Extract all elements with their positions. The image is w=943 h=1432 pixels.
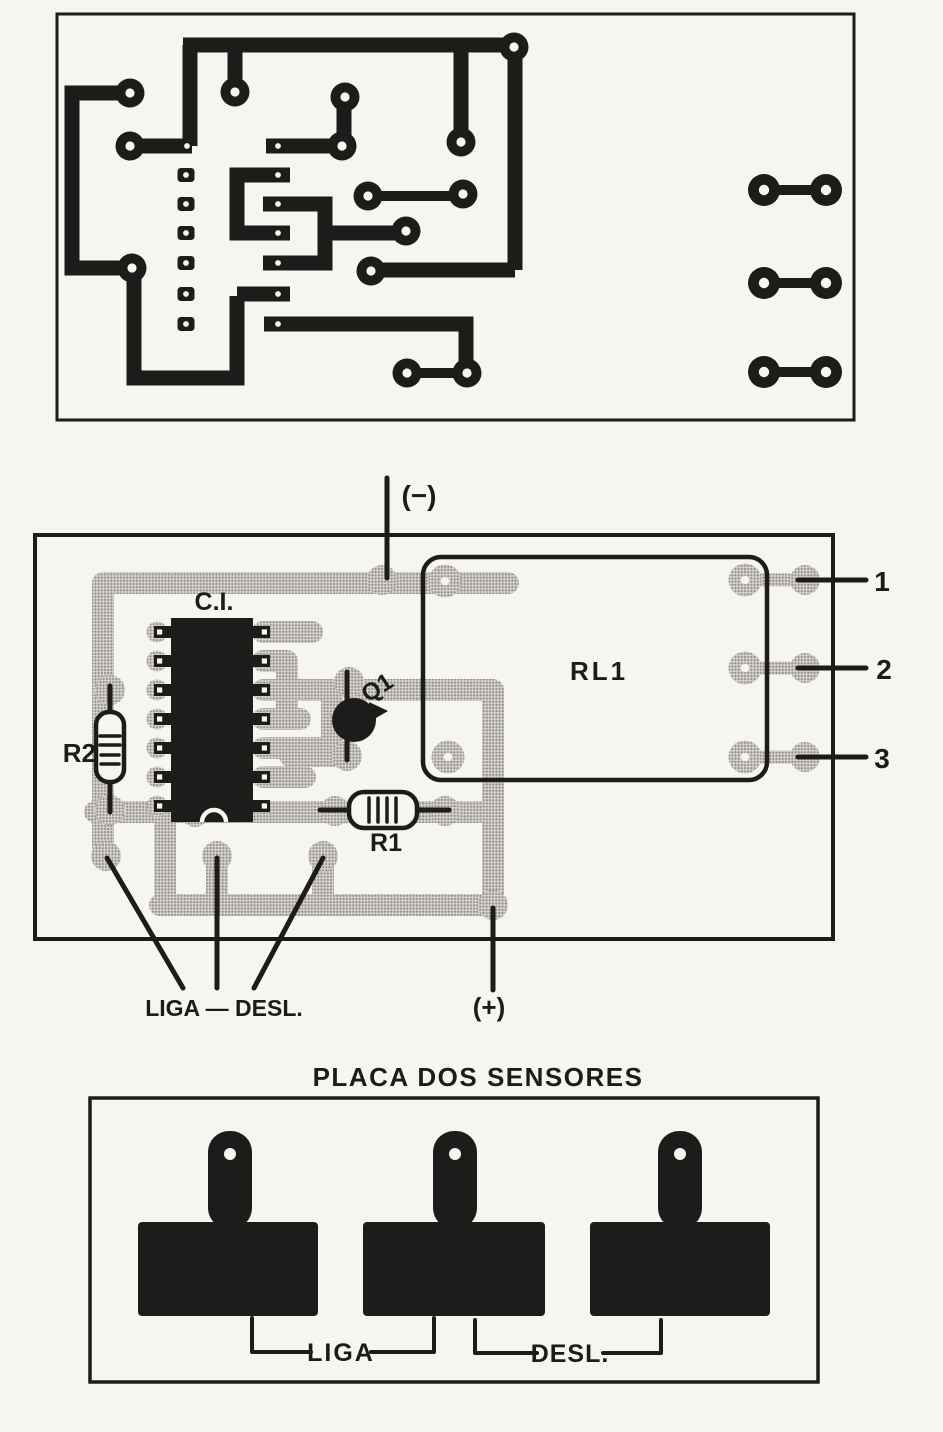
sensor-stem — [208, 1131, 252, 1229]
label-relay: RL1 — [570, 656, 628, 686]
label-pin2: 2 — [876, 654, 892, 685]
relay-pad — [729, 564, 762, 597]
label-pin1: 1 — [874, 566, 890, 597]
sensor-plate — [363, 1222, 545, 1316]
pad — [810, 174, 842, 206]
pad — [449, 180, 478, 209]
sensor-pad-1 — [138, 1131, 318, 1316]
pad — [810, 356, 842, 388]
ic-pin — [253, 713, 270, 725]
ic-pad — [178, 317, 195, 331]
relay-pad — [432, 741, 465, 774]
r2-body — [96, 712, 124, 782]
label-switch: LIGA — DESL. — [145, 995, 303, 1021]
ic-body — [171, 618, 253, 822]
relay-pad — [729, 652, 762, 685]
ic-pin — [154, 800, 171, 812]
pad — [354, 182, 383, 211]
sensor-board-title: PLACA DOS SENSORES — [313, 1062, 644, 1092]
relay-pad — [429, 565, 462, 598]
label-negative: (−) — [402, 480, 437, 511]
pad — [116, 132, 145, 161]
label-ic: C.I. — [195, 588, 234, 616]
copper-solder-pads — [116, 33, 843, 389]
pad — [221, 78, 250, 107]
pcb-figure: (−) C.I. R2 Q1 R1 RL1 1 2 3 LIGA — DESL.… — [0, 0, 943, 1432]
pad — [748, 174, 780, 206]
component-board: (−) C.I. R2 Q1 R1 RL1 1 2 3 LIGA — DESL.… — [35, 478, 892, 1022]
ic-pad — [178, 256, 195, 270]
ic-pin — [253, 771, 270, 783]
ic-pin — [154, 684, 171, 696]
ic-pin — [253, 800, 270, 812]
pad — [393, 359, 422, 388]
negative-pad — [367, 565, 397, 595]
ic-pin — [154, 742, 171, 754]
sensor-pad-2 — [363, 1131, 545, 1316]
pad — [447, 128, 476, 157]
sensor-hole — [674, 1148, 686, 1160]
ic-pad — [178, 226, 195, 240]
ic-pin — [253, 742, 270, 754]
sensor-hole — [224, 1148, 236, 1160]
ic-pin — [253, 626, 270, 638]
label-desl: DESL. — [531, 1340, 610, 1368]
ic-pin — [154, 655, 171, 667]
ic-pad — [178, 197, 195, 211]
copper-board — [57, 14, 854, 420]
ic-pin — [154, 626, 171, 638]
pad — [500, 33, 529, 62]
scanned-figure-page: (−) C.I. R2 Q1 R1 RL1 1 2 3 LIGA — DESL.… — [0, 0, 943, 1432]
ic-pad — [178, 287, 195, 301]
relay-pad — [729, 741, 762, 774]
ic-chip — [154, 618, 270, 822]
pad — [748, 356, 780, 388]
pad — [357, 257, 386, 286]
sensor-plate — [590, 1222, 770, 1316]
label-liga: LIGA — [307, 1339, 375, 1367]
label-pin3: 3 — [874, 743, 890, 774]
ic-pin — [253, 684, 270, 696]
sensor-hole — [449, 1148, 461, 1160]
sensor-board: PLACA DOS SENSORES LIGA DESL. — [90, 1062, 818, 1382]
label-r1: R1 — [370, 829, 402, 857]
pad — [392, 217, 421, 246]
pad — [810, 267, 842, 299]
sensor-stem — [658, 1131, 702, 1229]
pad — [453, 359, 482, 388]
pad — [748, 267, 780, 299]
ic-pin — [154, 713, 171, 725]
sensor-plate — [138, 1222, 318, 1316]
r1-body — [349, 792, 417, 828]
pad — [328, 132, 357, 161]
sensor-pad-3 — [590, 1131, 770, 1316]
switch-pointer-lines — [107, 858, 323, 988]
pad — [116, 79, 145, 108]
ic-pin — [154, 771, 171, 783]
pad — [118, 254, 147, 283]
label-positive: (+) — [473, 992, 506, 1022]
ic-pin — [253, 655, 270, 667]
label-r2: R2 — [63, 738, 96, 768]
sensor-stem — [433, 1131, 477, 1229]
pad — [331, 83, 360, 112]
ic-pad — [178, 168, 195, 182]
